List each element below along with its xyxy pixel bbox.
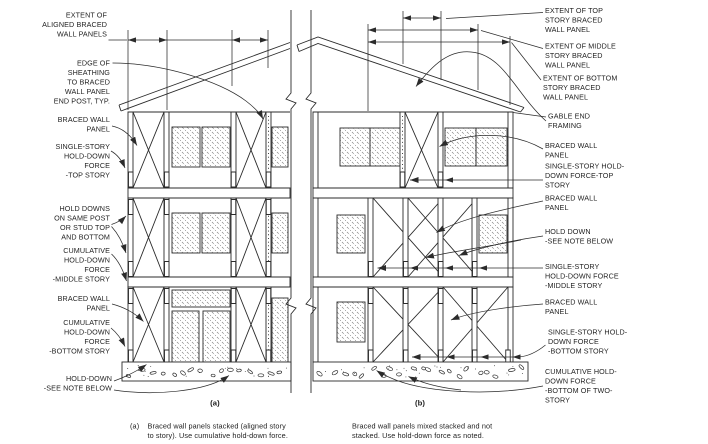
label-hold-down-note-b: -SEE NOTE BELOW <box>545 237 613 246</box>
foundation-speck <box>404 368 405 369</box>
foundation-stone <box>258 374 264 377</box>
foundation-speck <box>341 369 342 370</box>
right-label-column: EXTENT OF TOP STORY BRACED WALL PANEL EX… <box>543 6 628 405</box>
label-single-story-middle-b: HOLD-DOWN FORCE <box>545 272 619 281</box>
foundation-stone <box>237 369 242 372</box>
label-gable-end-framing: GABLE END <box>548 112 590 121</box>
label-hold-down-note: HOLD-DOWN <box>66 374 112 383</box>
leader-single-story-bottom-b <box>412 345 546 357</box>
label-braced-wall-panel: PANEL <box>86 125 110 134</box>
label-single-story-bottom-b: DOWN FORCE <box>548 337 599 346</box>
label-extent-middle-story: EXTENT OF MIDDLE <box>545 42 616 51</box>
diagram-canvas: EXTENT OF ALIGNED BRACED WALL PANELS EDG… <box>0 0 708 444</box>
dimensions <box>128 11 543 111</box>
label-braced-wall-panel: BRACED WALL <box>58 115 110 124</box>
foundation-speck <box>405 376 406 377</box>
label-single-story-top: -TOP STORY <box>66 171 111 180</box>
foundation-speck <box>145 371 146 372</box>
label-extent-middle-story: WALL PANEL <box>545 61 590 70</box>
left-label-column: EXTENT OF ALIGNED BRACED WALL PANELS EDG… <box>42 11 112 393</box>
label-cumulative-bottom: FORCE <box>84 337 110 346</box>
foundation-speck <box>143 375 144 376</box>
foundation-speck <box>461 367 462 368</box>
label-cumulative-middle: -MIDDLE STORY <box>53 275 110 284</box>
hold-down-brackets-a <box>129 172 271 377</box>
hatched-door-panel <box>172 311 199 362</box>
building-b <box>297 37 528 381</box>
foundation-speck <box>286 368 287 369</box>
label-single-story-middle-b: SINGLE-STORY <box>545 262 600 271</box>
label-hold-down-note-b: HOLD DOWN <box>545 227 591 236</box>
dimension-lines-b <box>368 18 510 42</box>
leader-edge-of-sheathing <box>113 63 264 119</box>
label-cumulative-two-story: DOWN FORCE <box>545 377 596 386</box>
foundation-speck <box>245 371 246 372</box>
foundation-speck <box>512 366 513 367</box>
label-single-story-top: FORCE <box>84 161 110 170</box>
leader-single-story-top-a <box>111 151 125 168</box>
hatched-panel <box>476 128 507 166</box>
hatched-panel <box>172 213 200 253</box>
leader-cumulative-middle-a <box>112 254 127 281</box>
hatched-panel-cut <box>272 213 288 253</box>
label-hold-downs-same-post: AND BOTTOM <box>61 233 110 242</box>
label-cumulative-bottom: -BOTTOM STORY <box>49 347 110 356</box>
foundation-speck <box>148 376 149 377</box>
foundation-speck <box>434 366 435 367</box>
label-cumulative-middle: FORCE <box>84 265 110 274</box>
label-braced-wall-panel: PANEL <box>86 304 110 313</box>
hatched-panel <box>370 128 400 166</box>
hatched-panel <box>340 128 370 166</box>
foundation-speck <box>364 367 365 368</box>
foundation-speck <box>354 373 355 374</box>
building-a <box>119 43 291 382</box>
foundation-speck <box>437 367 438 368</box>
label-braced-wall-panel: PANEL <box>545 203 569 212</box>
label-extent-aligned: EXTENT OF <box>66 11 108 20</box>
leader-hold-downs-same-post-1 <box>112 216 127 225</box>
foundation-speck <box>522 373 523 374</box>
subfigure-label-b: (b) <box>415 399 425 408</box>
label-single-story-bottom-b: -BOTTOM STORY <box>548 347 609 356</box>
foundation-stone <box>227 368 233 372</box>
hatched-panel <box>337 215 365 253</box>
caption-a: to story). Use cumulative hold-down forc… <box>148 431 288 440</box>
label-single-story-middle-b: -MIDDLE STORY <box>545 281 602 290</box>
foundation-speck <box>467 368 468 369</box>
leader-hold-downs-same-post-2 <box>112 227 127 254</box>
label-extent-top-story: WALL PANEL <box>545 25 590 34</box>
foundation-speck <box>508 374 509 375</box>
caption-b: stacked. Use hold-down force as noted. <box>352 431 484 440</box>
foundation-speck <box>254 376 255 377</box>
label-extent-top-story: STORY BRACED <box>545 16 603 25</box>
leader-cumulative-bottom-a <box>111 328 125 347</box>
dimension-label-connectors <box>446 13 543 81</box>
caption-b: Braced wall panels mixed stacked and not <box>352 422 492 431</box>
foundation-speck <box>396 369 397 370</box>
hatched-door-panel <box>203 311 230 362</box>
label-extent-bottom-story: WALL PANEL <box>543 93 588 102</box>
foundation-speck <box>268 368 269 369</box>
label-extent-aligned: WALL PANELS <box>57 30 107 39</box>
section-break-lines <box>286 10 316 393</box>
foundation-stone <box>161 372 165 375</box>
foundation-speck <box>343 371 344 372</box>
hatched-panel <box>337 302 365 342</box>
foundation-speck <box>440 367 441 368</box>
foundation-speck <box>225 368 226 369</box>
label-cumulative-two-story: CUMULATIVE HOLD- <box>545 367 617 376</box>
label-extent-bottom-story: STORY BRACED <box>543 83 601 92</box>
hatched-panel <box>172 127 200 167</box>
label-cumulative-two-story: STORY <box>545 396 570 405</box>
label-single-story-top-b: SINGLE-STORY HOLD- <box>545 162 625 171</box>
foundation-speck <box>415 377 416 378</box>
label-single-story-top-b: STORY <box>545 181 570 190</box>
foundation-speck <box>475 369 476 370</box>
label-edge-of-sheathing: SHEATHING <box>68 68 111 77</box>
label-hold-downs-same-post: HOLD DOWNS <box>59 204 110 213</box>
foundation-speck <box>416 370 417 371</box>
subfigure-label-a: (a) <box>210 399 220 408</box>
label-edge-of-sheathing: EDGE OF <box>77 59 111 68</box>
foundation-stone <box>484 370 489 374</box>
foundation-speck <box>227 367 228 368</box>
label-braced-wall-panel: PANEL <box>545 307 569 316</box>
foundation-speck <box>199 372 200 373</box>
label-braced-wall-panel: PANEL <box>545 151 569 160</box>
leader-extra-arrowheads <box>410 177 521 359</box>
extension-lines-a <box>128 30 268 110</box>
label-single-story-top-b: DOWN FORCE-TOP <box>545 171 613 180</box>
caption-a-prefix: (a) <box>130 422 139 431</box>
foundation-speck <box>325 371 326 372</box>
foundation-speck <box>248 368 249 369</box>
hatched-panel <box>202 213 230 253</box>
figure-braced-wall-panels: EXTENT OF ALIGNED BRACED WALL PANELS EDG… <box>0 0 708 444</box>
foundation-speck <box>494 365 495 366</box>
foundation-speck <box>127 368 128 369</box>
label-cumulative-middle: CUMULATIVE <box>63 246 110 255</box>
hatched-panel <box>202 127 230 167</box>
caption-a: Braced wall panels stacked (aligned stor… <box>148 422 287 431</box>
label-hold-downs-same-post: ON SAME POST <box>54 214 110 223</box>
label-single-story-top: HOLD-DOWN <box>64 152 110 161</box>
label-cumulative-bottom: CUMULATIVE <box>63 318 110 327</box>
hatched-transom <box>172 290 230 307</box>
label-edge-of-sheathing: TO BRACED <box>67 78 110 87</box>
foundation-speck <box>419 373 420 374</box>
foundation-stone <box>396 373 401 376</box>
foundation-speck <box>389 365 390 366</box>
label-braced-wall-panel: BRACED WALL <box>545 141 597 150</box>
foundation-stone <box>211 374 215 377</box>
label-edge-of-sheathing: END POST, TYP. <box>54 97 110 106</box>
label-extent-aligned: ALIGNED BRACED <box>42 20 107 29</box>
label-gable-end-framing: FRAMING <box>548 121 582 130</box>
label-extent-bottom-story: EXTENT OF BOTTOM <box>543 74 617 83</box>
label-braced-wall-panel: BRACED WALL <box>545 194 597 203</box>
foundation-speck <box>507 373 508 374</box>
label-extent-middle-story: STORY BRACED <box>545 51 603 60</box>
foundation-speck <box>186 376 187 377</box>
label-single-story-top: SINGLE-STORY <box>56 142 111 151</box>
foundation-speck <box>236 368 237 369</box>
label-hold-down-note: -SEE NOTE BELOW <box>44 384 112 393</box>
hatched-panel-cut <box>272 127 288 167</box>
label-braced-wall-panel: BRACED WALL <box>58 294 110 303</box>
label-cumulative-bottom: HOLD-DOWN <box>64 328 110 337</box>
foundation-speck <box>138 365 139 366</box>
hatched-panel <box>445 128 476 166</box>
roof-a <box>119 43 290 112</box>
foundation-speck <box>388 368 389 369</box>
foundation-speck <box>268 376 269 377</box>
label-cumulative-two-story: -BOTTOM OF TWO- <box>545 386 613 395</box>
label-extent-top-story: EXTENT OF TOP <box>545 6 603 15</box>
foundation-speck <box>382 375 383 376</box>
foundation-speck <box>150 366 151 367</box>
foundation-stone <box>198 369 203 373</box>
hatched-panel-cut <box>272 298 288 362</box>
label-hold-downs-same-post: OR STUD TOP <box>60 223 110 232</box>
foundation-a <box>122 362 291 381</box>
label-edge-of-sheathing: WALL PANEL <box>65 87 110 96</box>
roof-b <box>297 37 524 112</box>
label-single-story-bottom-b: SINGLE-STORY HOLD- <box>548 328 628 337</box>
label-cumulative-middle: HOLD-DOWN <box>64 256 110 265</box>
label-braced-wall-panel: BRACED WALL <box>545 298 597 307</box>
foundation-speck <box>406 370 407 371</box>
